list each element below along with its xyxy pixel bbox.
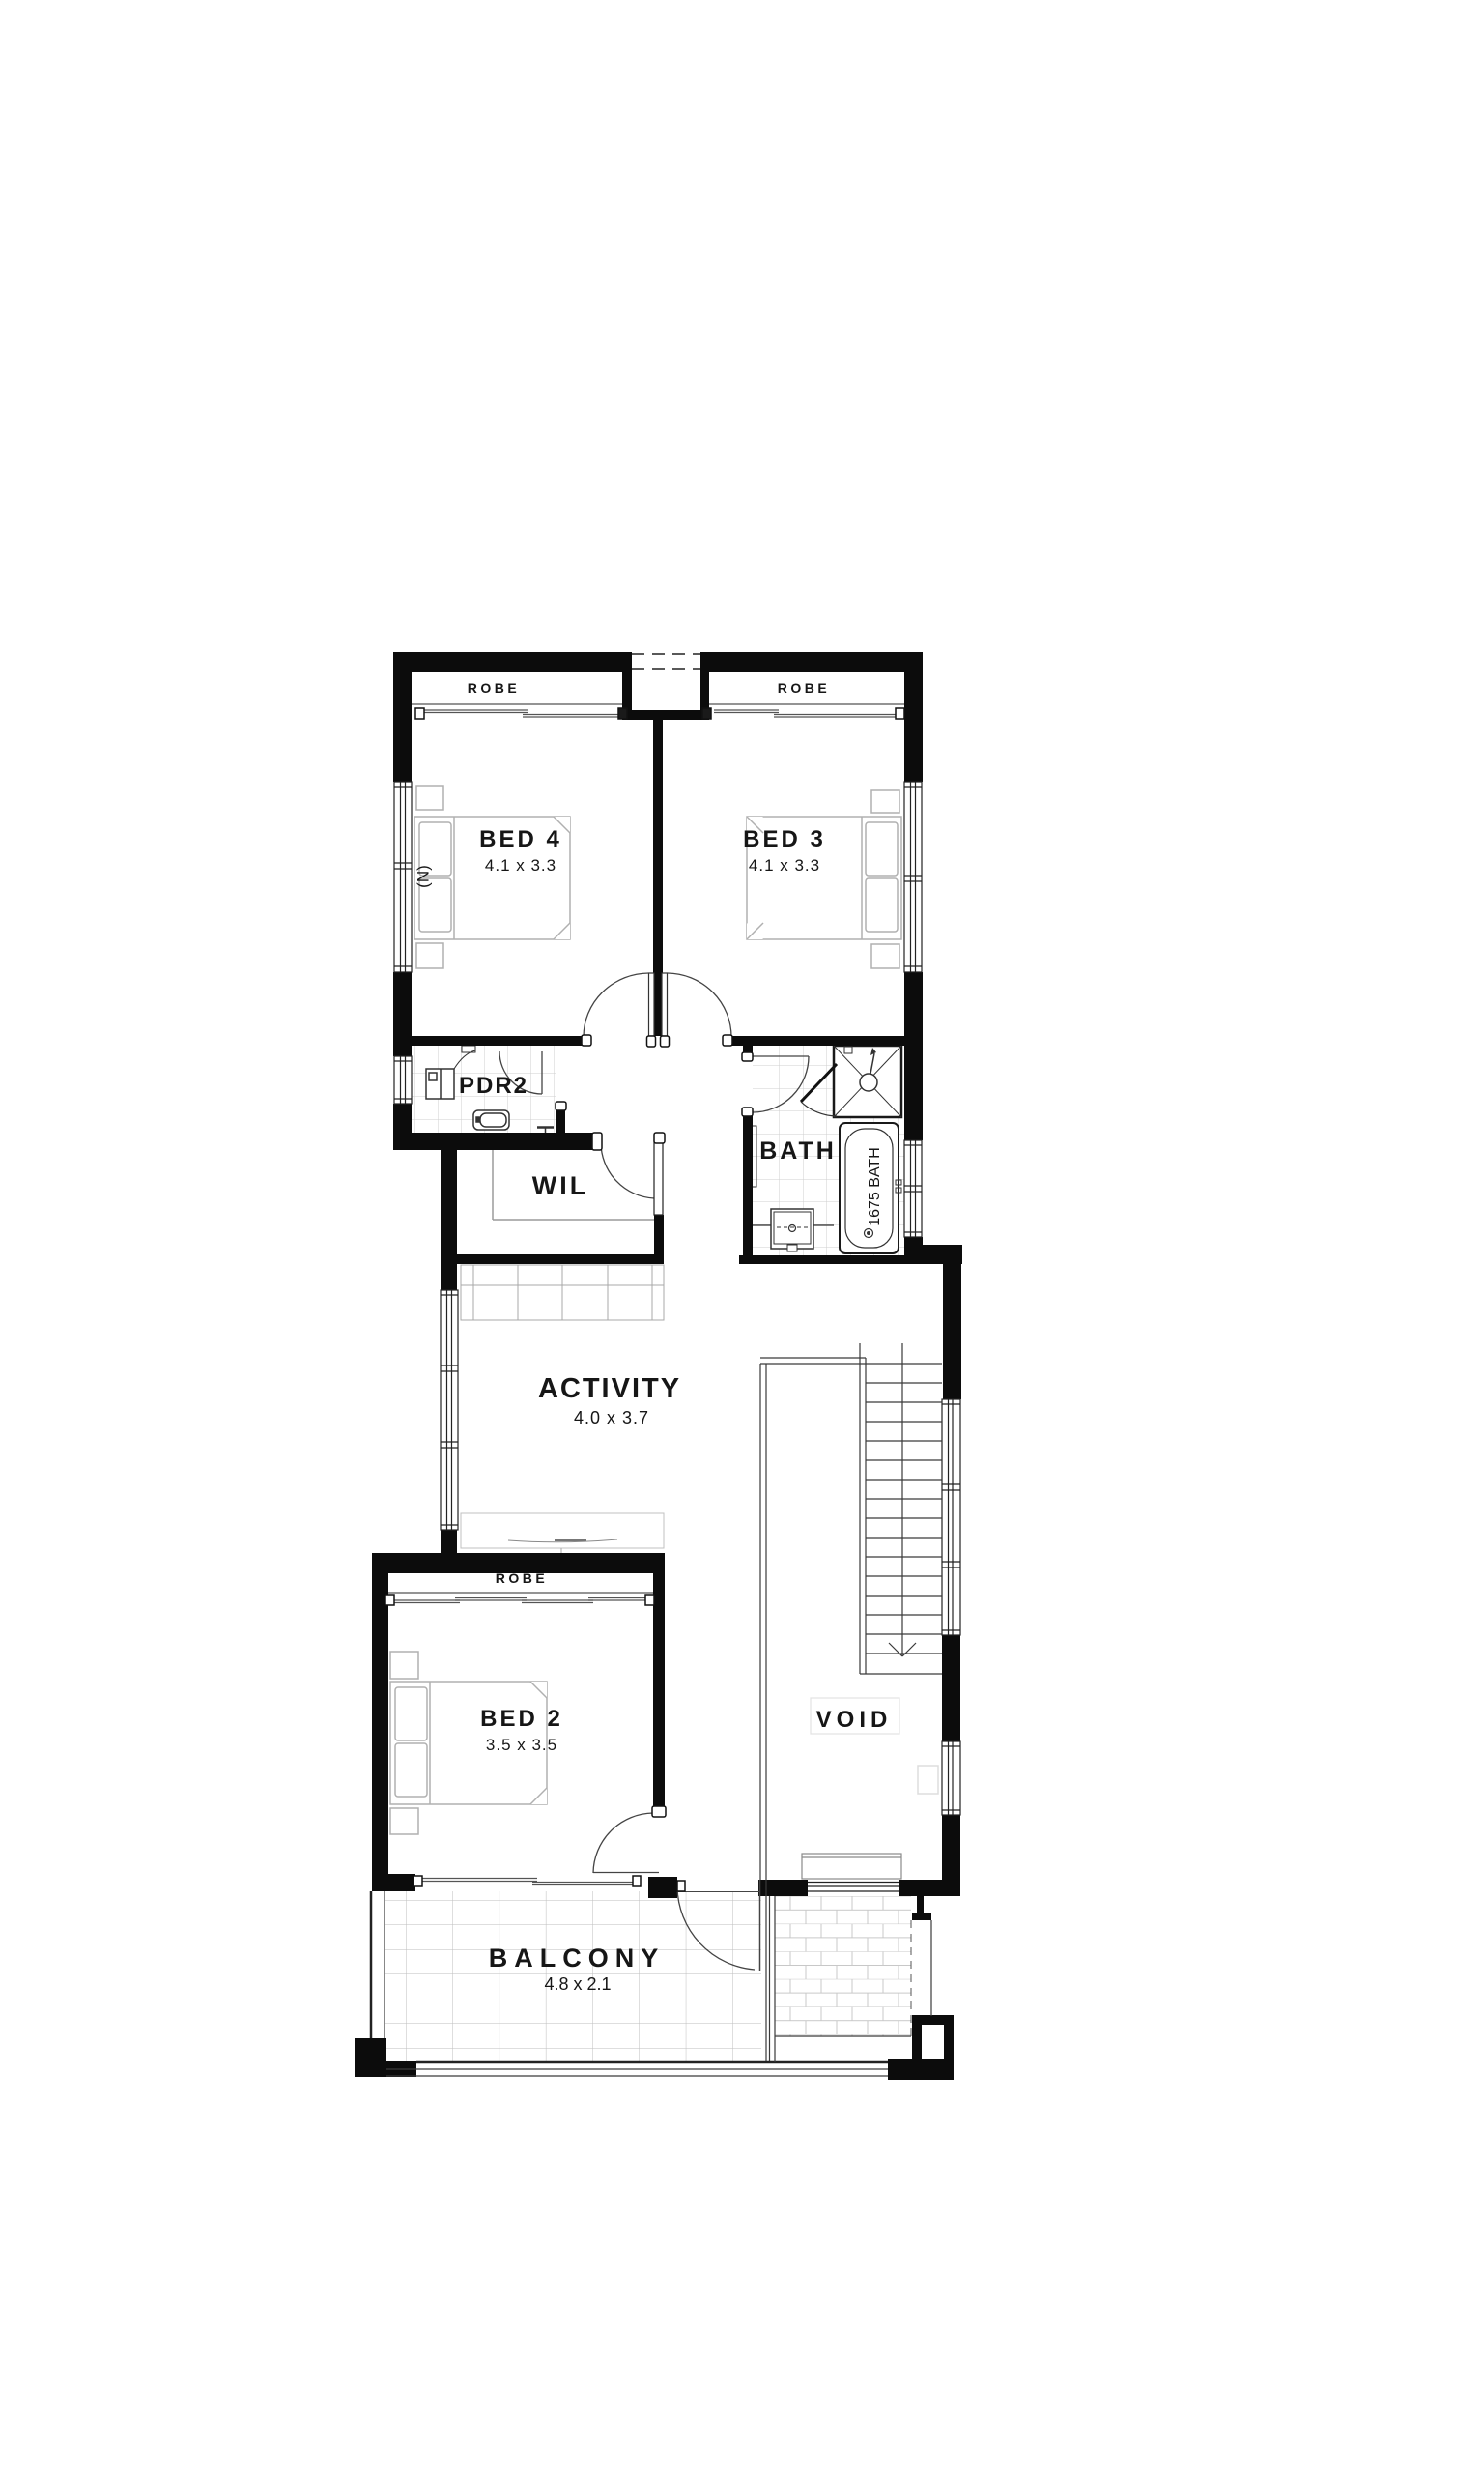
svg-text:VOID: VOID [816, 1707, 893, 1733]
svg-text:1675 BATH: 1675 BATH [867, 1147, 883, 1226]
svg-text:WIL: WIL [532, 1171, 588, 1200]
svg-text:ROBE: ROBE [496, 1570, 548, 1586]
svg-text:(N): (N) [414, 865, 432, 888]
svg-text:4.1 x 3.3: 4.1 x 3.3 [749, 856, 820, 875]
svg-text:BALCONY: BALCONY [489, 1943, 666, 1972]
svg-text:BED 4: BED 4 [479, 826, 562, 852]
svg-text:3.5 x 3.5: 3.5 x 3.5 [486, 1736, 557, 1754]
svg-text:BATH: BATH [759, 1137, 837, 1165]
svg-text:BED 3: BED 3 [743, 826, 826, 852]
svg-text:ACTIVITY: ACTIVITY [538, 1373, 681, 1404]
svg-text:4.0 x 3.7: 4.0 x 3.7 [574, 1408, 649, 1427]
svg-text:4.8 x 2.1: 4.8 x 2.1 [544, 1974, 611, 1994]
svg-text:4.1 x 3.3: 4.1 x 3.3 [485, 856, 556, 875]
svg-text:ROBE: ROBE [468, 680, 520, 696]
svg-text:BED 2: BED 2 [480, 1706, 563, 1732]
svg-text:ROBE: ROBE [778, 680, 830, 696]
svg-text:PDR2: PDR2 [459, 1073, 528, 1099]
